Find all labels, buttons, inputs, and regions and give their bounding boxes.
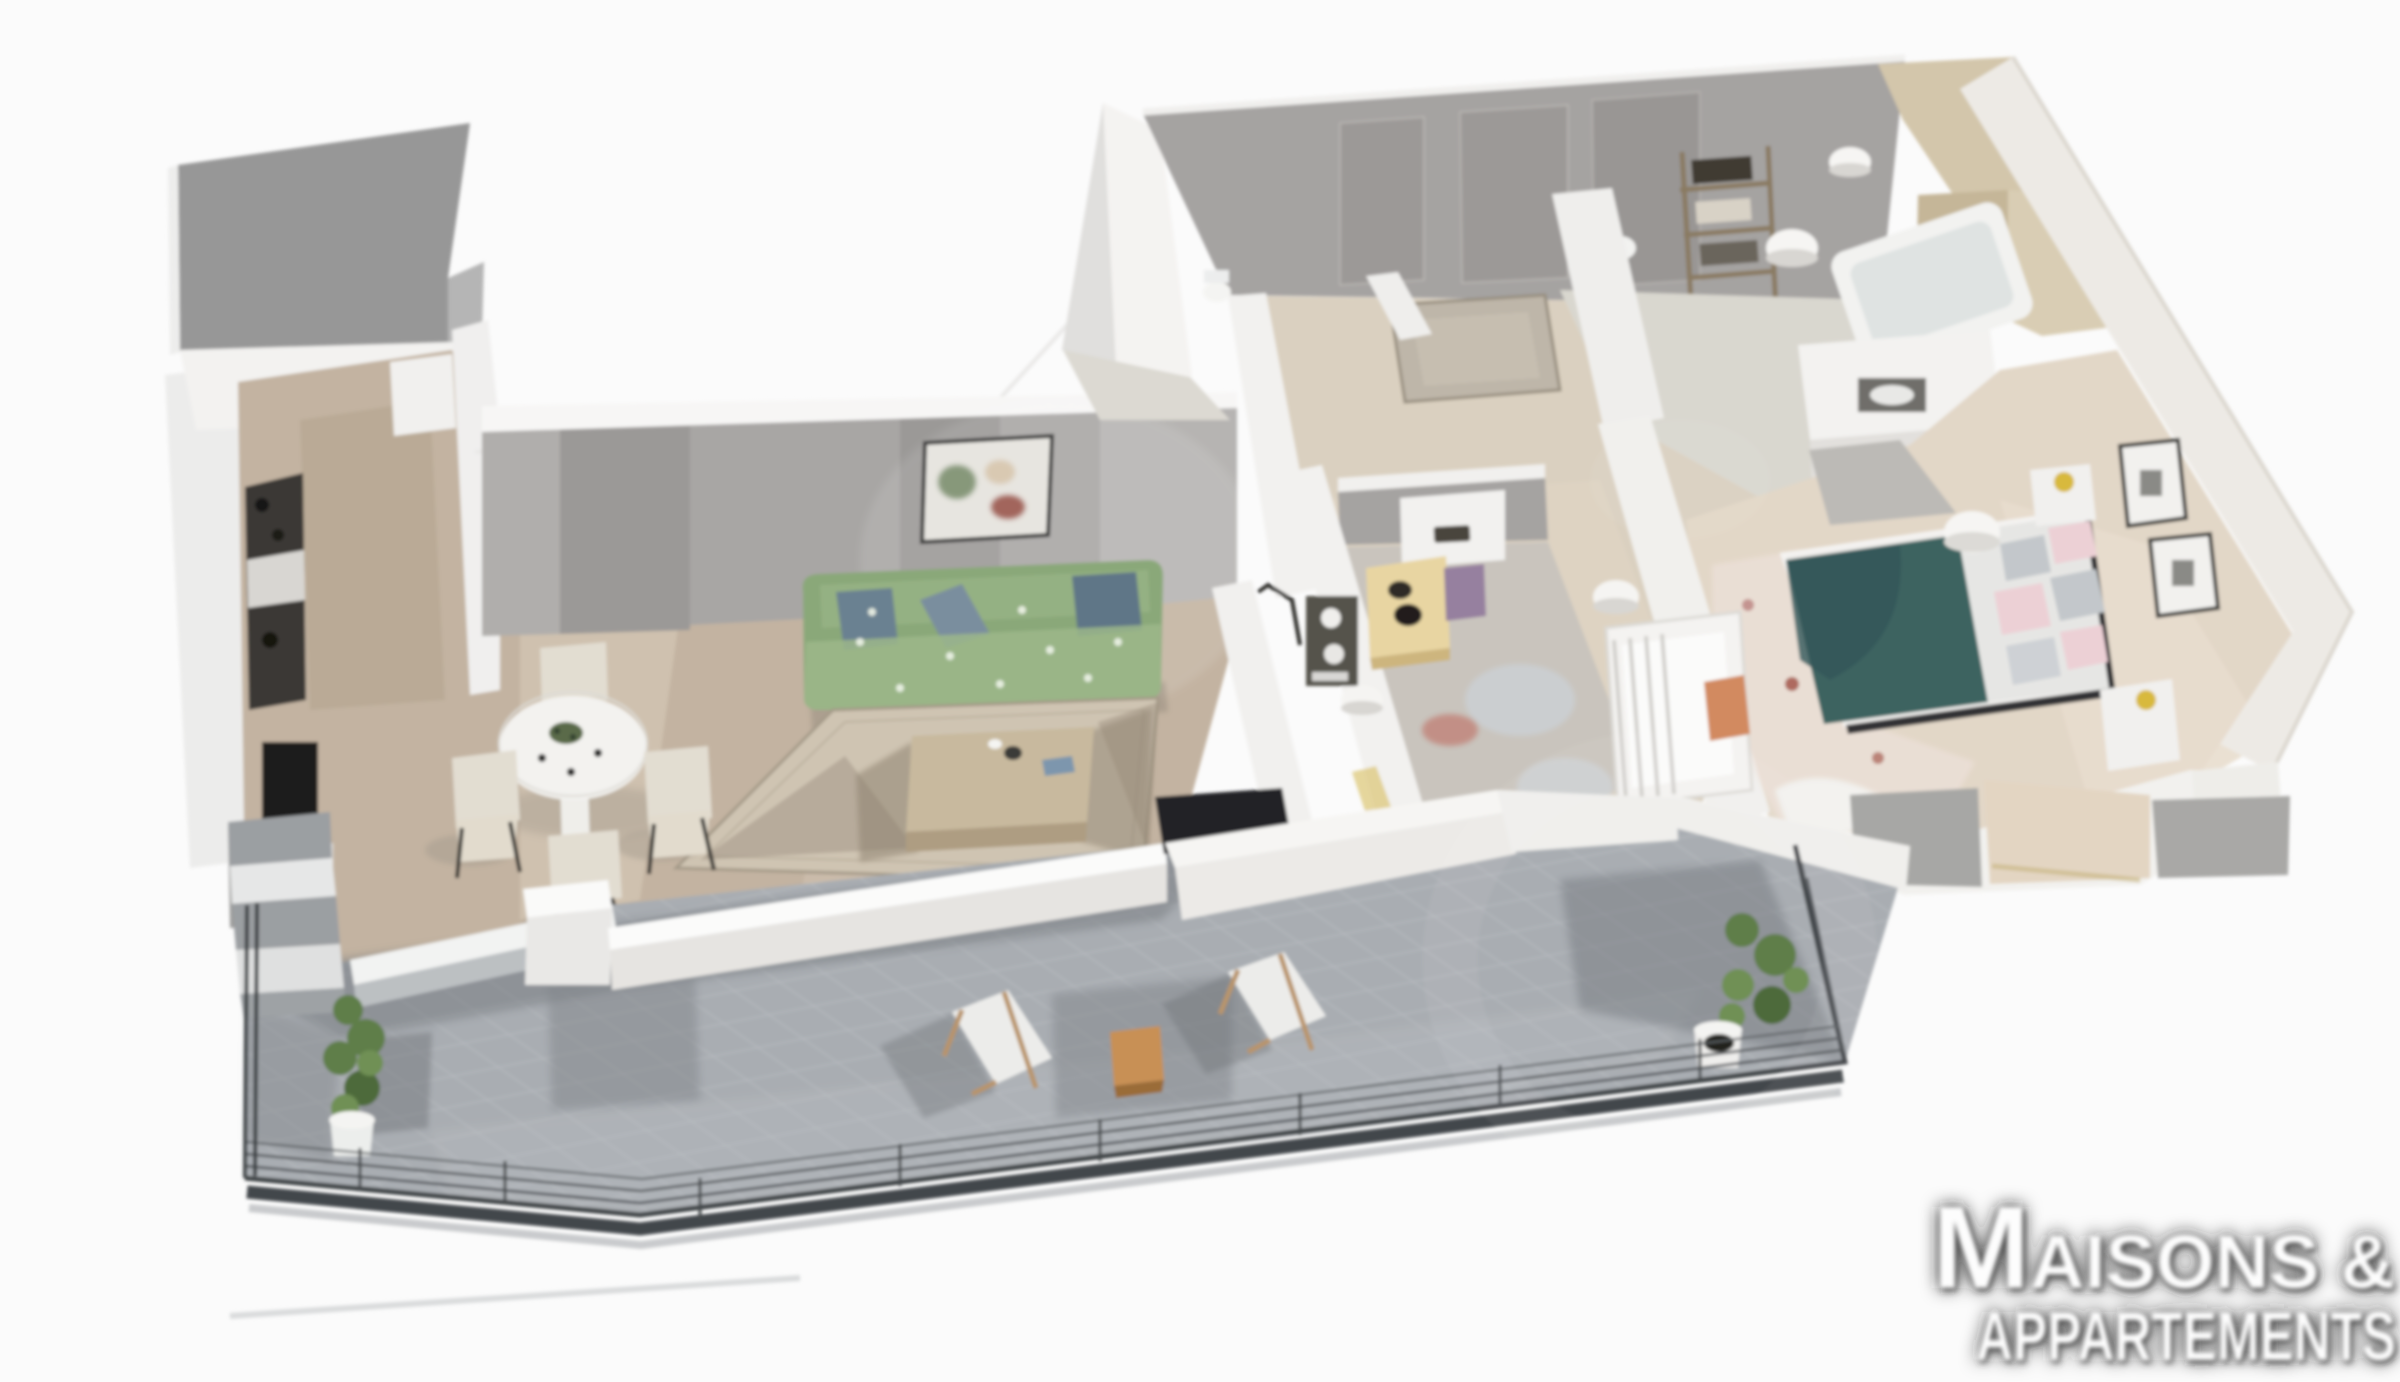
svg-text:AISONS &: AISONS & xyxy=(2030,1220,2395,1305)
svg-text:APPARTEMENTS: APPARTEMENTS xyxy=(1976,1297,2396,1375)
svg-text:M: M xyxy=(1932,1182,2030,1314)
